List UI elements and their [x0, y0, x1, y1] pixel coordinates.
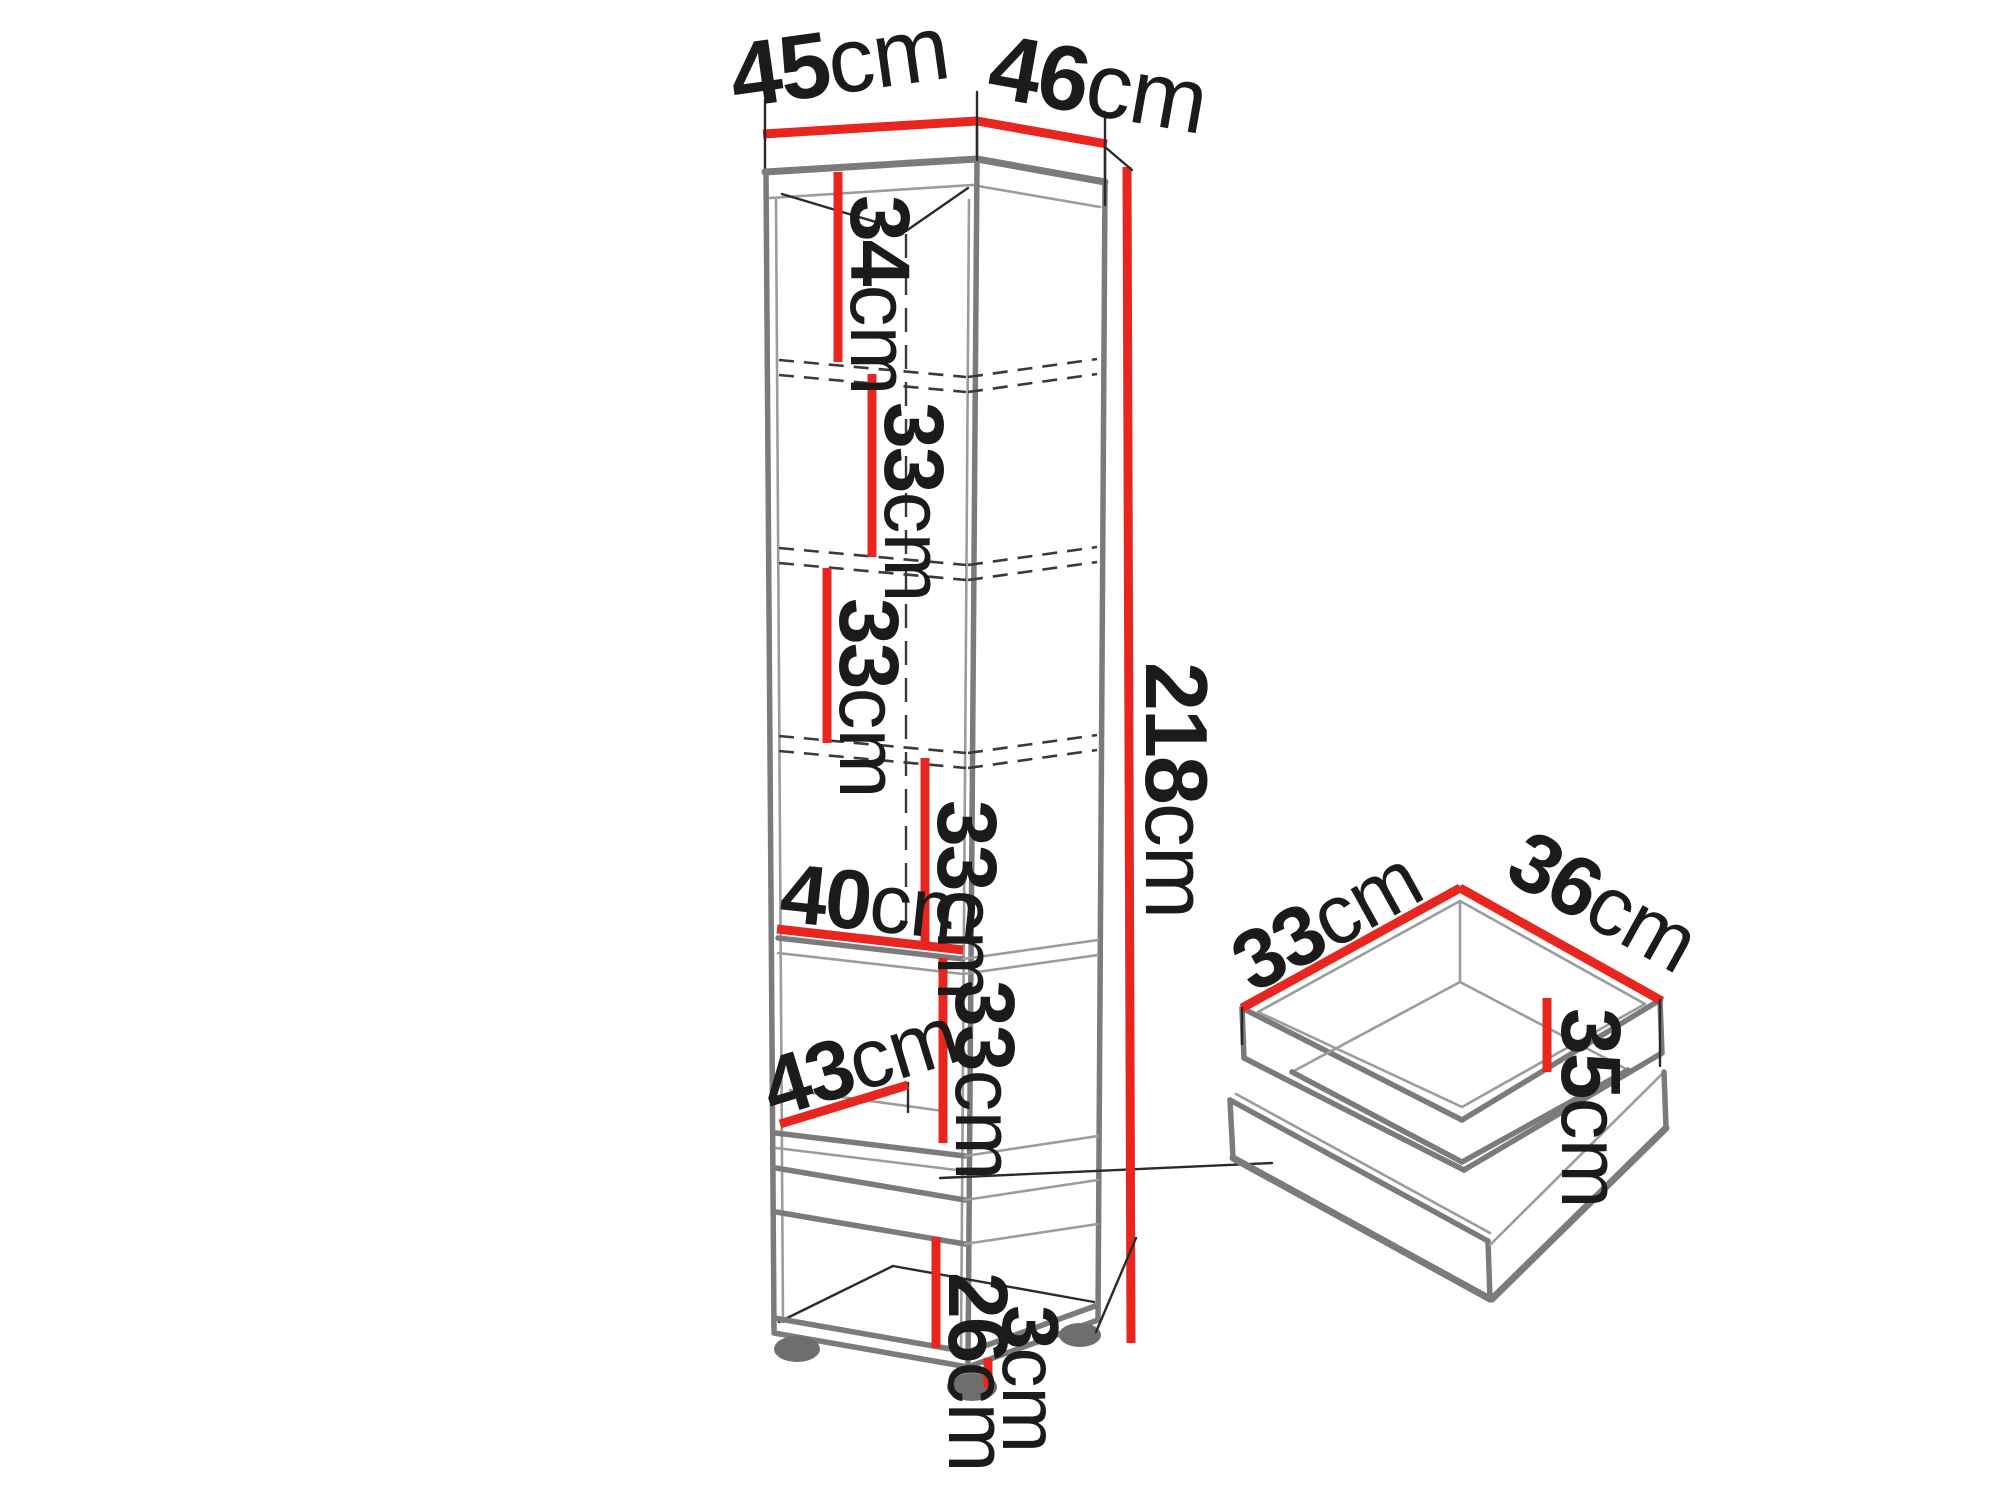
shelf-level-1 [779, 359, 1097, 392]
dim-label-section-3: 33cm [822, 598, 916, 797]
cabinet-drawer-band [776, 1168, 1098, 1244]
dim-label-section-1: 34cm [833, 195, 927, 394]
dim-label-feet: 3cm [986, 1305, 1075, 1452]
dim-label-drawer-height: 35cm [1544, 1008, 1638, 1207]
dim-label-shelf-depth: 43cm [751, 987, 969, 1135]
cabinet-left-edge [766, 174, 774, 1330]
cabinet-drawing [765, 120, 1105, 1401]
furniture-dimension-diagram: 45cm 46cm 218cm 34cm 33cm 33cm 33cm 33cm… [0, 0, 2000, 1500]
dim-label-section-2: 33cm [867, 402, 961, 601]
dim-label-drawer-width: 33cm [1216, 831, 1436, 1010]
dim-label-top-width: 45cm [724, 0, 955, 128]
diagram-canvas: 45cm 46cm 218cm 34cm 33cm 33cm 33cm 33cm… [0, 0, 2000, 1500]
foot-left [774, 1336, 820, 1362]
dim-label-height: 218cm [1127, 662, 1226, 918]
cabinet-front-corner-edge [968, 161, 977, 1362]
cabinet-right-edge [1098, 184, 1105, 1318]
